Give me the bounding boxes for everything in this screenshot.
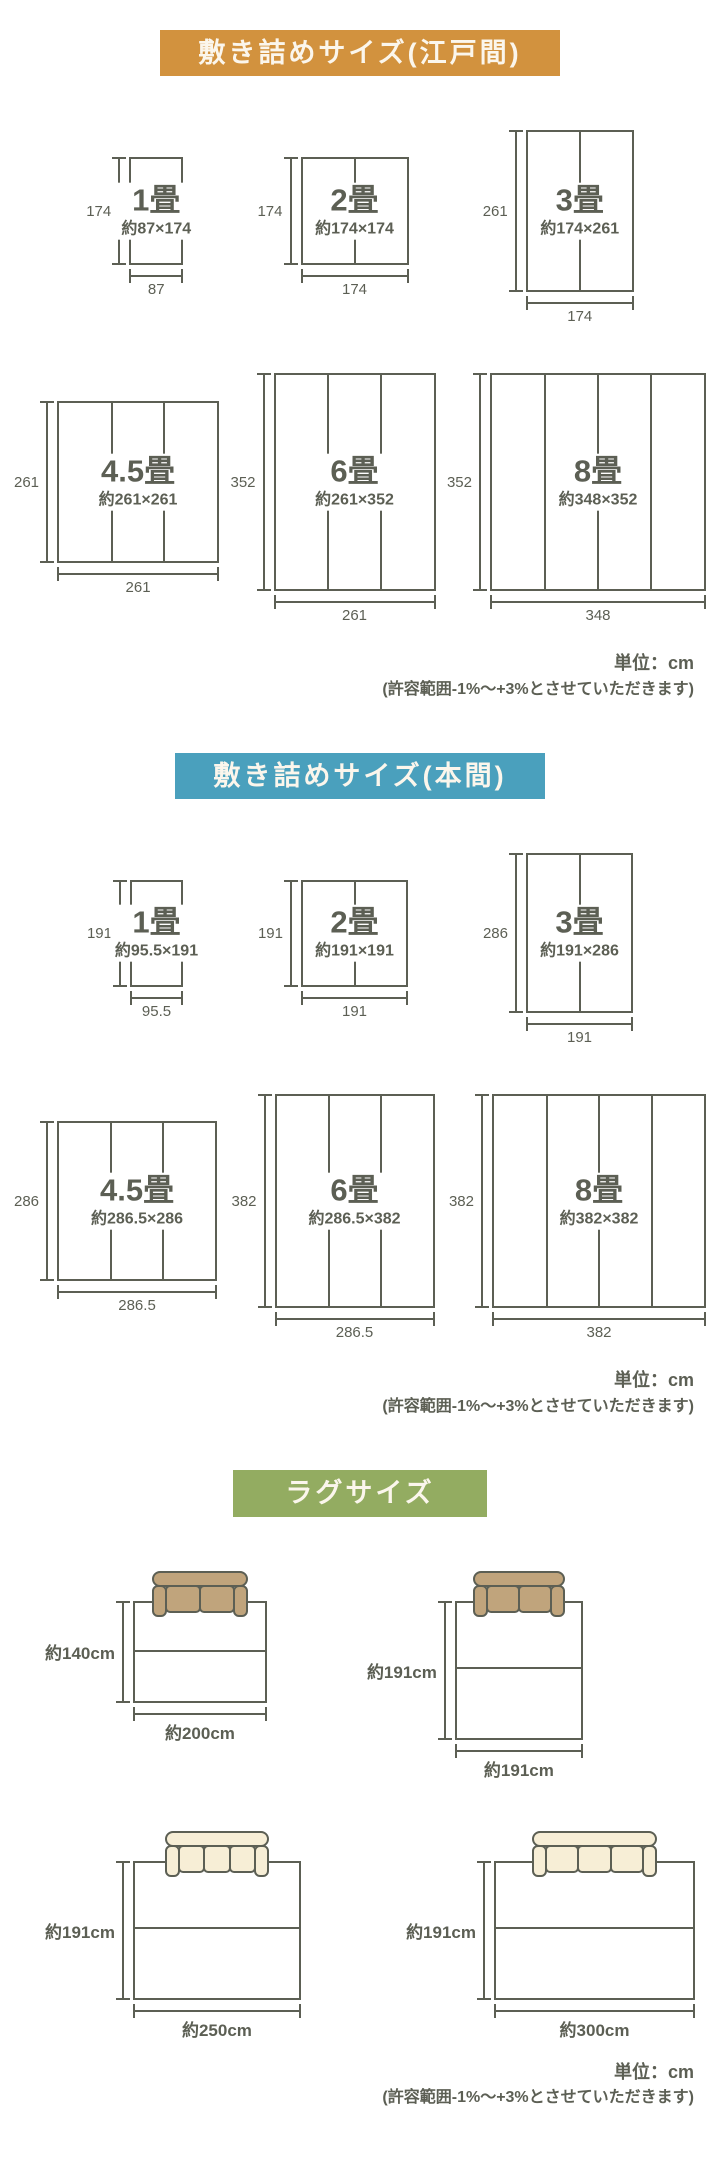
sofa-cushion (165, 1585, 201, 1613)
rug-height-dim-label: 約191cm (45, 1918, 115, 1943)
tatami-row: 1741畳約87×174871742畳約174×1741742613畳約174×… (0, 130, 720, 325)
tatami-size-label: 4.5畳約261×261 (94, 454, 183, 511)
rug-height-dim-label: 約191cm (406, 1918, 476, 1943)
tatami-rect: 1畳約95.5×191 (130, 880, 183, 987)
rug-rect (494, 1861, 695, 2000)
tatami-diagram: 2613畳約174×261174 (483, 130, 634, 325)
width-dim-line (57, 573, 219, 575)
edoma-tolerance-note: (許容範囲-1%〜+3%とさせていただきます) (0, 678, 694, 703)
height-dim-line (264, 1094, 266, 1308)
tatami-size-dims: 約261×261 (99, 492, 178, 510)
tatami-size-dims: 約191×286 (540, 943, 619, 961)
rug-height-dim-line (122, 1601, 124, 1703)
rug-group: 約250cm (133, 1831, 301, 2041)
height-dim-label: 352 (447, 474, 472, 491)
tatami-rect: 2畳約191×191 (301, 880, 408, 987)
rug-height-dim-line (122, 1861, 124, 2000)
rug-group: 約191cm (455, 1571, 583, 1781)
height-dim-line (46, 1121, 48, 1281)
tatami-rect-group: 4.5畳約286.5×286286.5 (57, 1121, 217, 1314)
sofa-cushion (199, 1585, 235, 1613)
tatami-size-label: 2畳約174×174 (310, 183, 399, 240)
height-dimension: 174 (257, 157, 291, 265)
rug-group: 約200cm (133, 1571, 267, 1744)
sofa-seat-row (532, 1845, 657, 1877)
sofa-cushion (545, 1845, 579, 1873)
height-dimension: 286 (14, 1121, 48, 1281)
rug-fold-line (135, 1650, 265, 1652)
tatami-size-dims: 約382×382 (560, 1211, 639, 1229)
tatami-size-dims: 約95.5×191 (115, 943, 198, 961)
tatami-rect-group: 3畳約191×286191 (526, 853, 633, 1046)
section-edoma: 敷き詰めサイズ(江戸間) 1741畳約87×174871742畳約174×174… (0, 30, 720, 703)
tatami-rug-size-guide: 敷き詰めサイズ(江戸間) 1741畳約87×174871742畳約174×174… (0, 0, 720, 2160)
edoma-section-title: 敷き詰めサイズ(江戸間) (198, 38, 521, 68)
tatami-rect: 8畳約382×382 (492, 1094, 706, 1308)
tatami-rect-group: 2畳約174×174174 (301, 157, 409, 298)
rug-section-header: ラグサイズ (233, 1470, 486, 1516)
height-dim-line (290, 157, 292, 265)
tatami-diagram: 3826畳約286.5×382286.5 (231, 1094, 434, 1341)
tatami-diagram: 2614.5畳約261×261261 (14, 401, 219, 596)
sofa-seat-row (165, 1845, 269, 1877)
tatami-size-name: 1畳 (115, 906, 198, 941)
width-dim-label: 95.5 (142, 1003, 171, 1020)
tatami-size-name: 4.5畳 (91, 1174, 183, 1209)
tatami-rect-group: 6畳約286.5×382286.5 (275, 1094, 435, 1341)
tatami-row: 2864.5畳約286.5×286286.53826畳約286.5×382286… (0, 1094, 720, 1341)
edoma-notes: 単位：cm (許容範囲-1%〜+3%とさせていただきます) (0, 650, 720, 703)
tatami-rect: 6畳約286.5×382 (275, 1094, 435, 1308)
tatami-rect-group: 1畳約87×17487 (129, 157, 183, 298)
tatami-size-label: 1畳約87×174 (116, 183, 196, 240)
tatami-size-label: 6畳約286.5×382 (303, 1173, 405, 1230)
sofa-cushion (518, 1585, 552, 1613)
tatami-size-name: 2畳 (315, 184, 394, 219)
height-dimension: 286 (483, 853, 517, 1013)
sofa-armrest-right (642, 1845, 657, 1877)
tatami-size-name: 8畳 (560, 1174, 639, 1209)
tatami-diagram: 1912畳約191×191191 (258, 880, 408, 1020)
sofa-top-view (473, 1571, 565, 1617)
rug-height-dimension: 約191cm (367, 1601, 446, 1740)
height-dim-line (515, 853, 517, 1013)
tatami-size-name: 4.5畳 (99, 455, 178, 490)
rug-section-title: ラグサイズ (285, 1478, 434, 1508)
tatami-size-name: 2畳 (315, 906, 394, 941)
edoma-unit-note: 単位：cm (0, 650, 694, 678)
height-dimension: 174 (86, 157, 120, 265)
tatami-rect-group: 6畳約261×352261 (274, 373, 436, 624)
rug-height-dimension: 約191cm (45, 1861, 124, 2000)
width-dim-line (301, 997, 408, 999)
tatami-size-dims: 約261×352 (315, 492, 394, 510)
tatami-diagram: 1911畳約95.5×19195.5 (87, 880, 183, 1020)
tatami-rect: 8畳約348×352 (490, 373, 706, 591)
height-dim-label: 261 (483, 203, 508, 220)
height-dim-line (263, 373, 265, 591)
width-dim-line (130, 997, 183, 999)
tatami-size-label: 8畳約348×352 (554, 454, 643, 511)
height-dim-line (290, 880, 292, 987)
height-dim-label: 191 (258, 925, 283, 942)
honma-notes: 単位：cm (許容範囲-1%〜+3%とさせていただきます) (0, 1367, 720, 1420)
sofa-top-view (152, 1571, 248, 1617)
sofa-seat-row (473, 1585, 565, 1617)
edoma-diagrams: 1741畳約87×174871742畳約174×1741742613畳約174×… (0, 130, 720, 624)
honma-unit-note: 単位：cm (0, 1367, 694, 1395)
rug-fold-line (457, 1667, 581, 1669)
section-honma: 敷き詰めサイズ(本間) 1911畳約95.5×19195.51912畳約191×… (0, 753, 720, 1420)
rug-height-dimension: 約191cm (406, 1861, 485, 2000)
sofa-seat-row (152, 1585, 248, 1617)
tatami-size-name: 6畳 (308, 1174, 400, 1209)
tatami-size-dims: 約87×174 (121, 221, 191, 239)
rug-height-dim-label: 約140cm (45, 1639, 115, 1664)
tatami-rect: 1畳約87×174 (129, 157, 183, 265)
sofa-cushion (203, 1845, 230, 1873)
honma-section-title: 敷き詰めサイズ(本間) (213, 761, 506, 791)
tatami-size-name: 6畳 (315, 455, 394, 490)
tatami-size-label: 4.5畳約286.5×286 (86, 1173, 188, 1230)
height-dim-label: 261 (14, 474, 39, 491)
rug-height-dimension: 約140cm (45, 1601, 124, 1703)
tatami-row: 2614.5畳約261×2612613526畳約261×3522613528畳約… (0, 373, 720, 624)
tatami-size-dims: 約174×261 (540, 221, 619, 239)
height-dim-label: 382 (449, 1193, 474, 1210)
width-dim-line (57, 1291, 217, 1293)
rug-width-dim-label: 約200cm (165, 1719, 235, 1744)
width-dim-line (301, 275, 409, 277)
rug-diagram: 約191cm約191cm (367, 1571, 583, 1781)
tatami-size-dims: 約174×174 (315, 221, 394, 239)
tatami-rect-group: 3畳約174×261174 (526, 130, 634, 325)
tatami-size-label: 1畳約95.5×191 (110, 905, 203, 962)
rug-unit-note: 単位：cm (0, 2059, 694, 2087)
tatami-size-dims: 約348×352 (559, 492, 638, 510)
rug-width-dim-label: 約300cm (560, 2016, 630, 2041)
tatami-size-label: 2畳約191×191 (310, 905, 399, 962)
width-dim-label: 348 (585, 607, 610, 624)
tatami-rect: 4.5畳約261×261 (57, 401, 219, 563)
height-dim-label: 352 (230, 474, 255, 491)
sofa-top-view (532, 1831, 657, 1877)
tatami-diagram: 3526畳約261×352261 (230, 373, 435, 624)
width-dim-line (275, 1318, 435, 1320)
tatami-rect: 3畳約174×261 (526, 130, 634, 292)
width-dim-label: 261 (126, 579, 151, 596)
tatami-rect-group: 1畳約95.5×19195.5 (130, 880, 183, 1020)
width-dim-label: 174 (342, 281, 367, 298)
tatami-rect-group: 8畳約348×352348 (490, 373, 706, 624)
rug-notes: 単位：cm (許容範囲-1%〜+3%とさせていただきます) (0, 2059, 720, 2112)
tatami-mat-divider (544, 375, 546, 589)
sofa-cushion (178, 1845, 205, 1873)
width-dim-label: 191 (567, 1029, 592, 1046)
rug-fold-line (135, 1927, 299, 1929)
honma-diagrams: 1911畳約95.5×19195.51912畳約191×1911912863畳約… (0, 853, 720, 1341)
height-dim-label: 174 (86, 203, 111, 220)
height-dimension: 261 (483, 130, 517, 292)
tatami-mat-divider (651, 1096, 653, 1306)
width-dim-label: 382 (586, 1324, 611, 1341)
rug-height-dim-line (444, 1601, 446, 1740)
height-dim-line (479, 373, 481, 591)
sofa-top-view (165, 1831, 269, 1877)
height-dimension: 382 (449, 1094, 483, 1308)
height-dim-line (46, 401, 48, 563)
rug-row: 約191cm約250cm約191cm約300cm (0, 1831, 720, 2041)
rug-diagram: 約191cm約250cm (45, 1831, 301, 2041)
rug-width-dim-line (133, 2010, 301, 2012)
rug-rect (133, 1861, 301, 2000)
tatami-diagram: 1741畳約87×17487 (86, 157, 183, 298)
rug-row: 約140cm約200cm約191cm約191cm (0, 1571, 720, 1781)
sofa-cushion (577, 1845, 611, 1873)
tatami-rect-group: 4.5畳約261×261261 (57, 401, 219, 596)
width-dim-label: 261 (342, 607, 367, 624)
tatami-rect: 2畳約174×174 (301, 157, 409, 265)
width-dim-line (490, 601, 706, 603)
rug-width-dim-line (455, 1750, 583, 1752)
height-dimension: 191 (258, 880, 292, 987)
height-dim-label: 286 (483, 925, 508, 942)
tatami-rect-group: 8畳約382×382382 (492, 1094, 706, 1341)
tatami-rect-group: 2畳約191×191191 (301, 880, 408, 1020)
width-dim-label: 174 (567, 308, 592, 325)
rug-group: 約300cm (494, 1831, 695, 2041)
height-dim-label: 191 (87, 925, 112, 942)
rug-diagram: 約140cm約200cm (45, 1571, 267, 1744)
rug-fold-line (496, 1927, 693, 1929)
tatami-diagram: 3828畳約382×382382 (449, 1094, 706, 1341)
width-dim-label: 191 (342, 1003, 367, 1020)
tatami-size-name: 3畳 (540, 906, 619, 941)
tatami-rect: 6畳約261×352 (274, 373, 436, 591)
height-dimension: 352 (230, 373, 264, 591)
tatami-size-name: 1畳 (121, 184, 191, 219)
tatami-size-dims: 約286.5×382 (308, 1211, 400, 1229)
rug-height-dim-label: 約191cm (367, 1658, 437, 1683)
tatami-size-name: 3畳 (540, 184, 619, 219)
tatami-diagram: 3528畳約348×352348 (447, 373, 706, 624)
tatami-size-label: 3畳約174×261 (535, 183, 624, 240)
width-dim-line (274, 601, 436, 603)
tatami-size-dims: 約191×191 (315, 943, 394, 961)
honma-section-header: 敷き詰めサイズ(本間) (175, 753, 544, 799)
sofa-armrest-right (233, 1585, 248, 1617)
height-dim-line (481, 1094, 483, 1308)
width-dim-line (526, 302, 634, 304)
tatami-mat-divider (546, 1096, 548, 1306)
rug-width-dim-label: 約191cm (484, 1756, 554, 1781)
rug-diagram: 約191cm約300cm (406, 1831, 695, 2041)
tatami-rect: 3畳約191×286 (526, 853, 633, 1013)
tatami-diagram: 2863畳約191×286191 (483, 853, 633, 1046)
tatami-diagram: 1742畳約174×174174 (257, 157, 408, 298)
height-dim-label: 174 (257, 203, 282, 220)
tatami-diagram: 2864.5畳約286.5×286286.5 (14, 1121, 217, 1314)
rug-width-dim-line (133, 1713, 267, 1715)
height-dim-label: 382 (231, 1193, 256, 1210)
rug-tolerance-note: (許容範囲-1%〜+3%とさせていただきます) (0, 2086, 694, 2111)
sofa-cushion (486, 1585, 520, 1613)
section-rug: ラグサイズ 約140cm約200cm約191cm約191cm約191cm約250… (0, 1470, 720, 2111)
sofa-cushion (610, 1845, 644, 1873)
rug-rect (455, 1601, 583, 1740)
rug-diagrams: 約140cm約200cm約191cm約191cm約191cm約250cm約191… (0, 1571, 720, 2041)
width-dim-line (526, 1023, 633, 1025)
tatami-rect: 4.5畳約286.5×286 (57, 1121, 217, 1281)
height-dim-label: 286 (14, 1193, 39, 1210)
height-dim-line (515, 130, 517, 292)
height-dimension: 382 (231, 1094, 265, 1308)
edoma-section-header: 敷き詰めサイズ(江戸間) (160, 30, 559, 76)
tatami-size-name: 8畳 (559, 455, 638, 490)
width-dim-label: 286.5 (336, 1324, 374, 1341)
width-dim-label: 286.5 (118, 1297, 156, 1314)
rug-width-dim-line (494, 2010, 695, 2012)
rug-height-dim-line (483, 1861, 485, 2000)
sofa-cushion (229, 1845, 256, 1873)
width-dim-line (492, 1318, 706, 1320)
sofa-armrest-right (254, 1845, 269, 1877)
tatami-size-label: 6畳約261×352 (310, 454, 399, 511)
rug-width-dim-label: 約250cm (182, 2016, 252, 2041)
width-dim-label: 87 (148, 281, 165, 298)
height-dimension: 261 (14, 401, 48, 563)
sofa-armrest-right (550, 1585, 565, 1617)
tatami-row: 1911畳約95.5×19195.51912畳約191×1911912863畳約… (0, 853, 720, 1046)
tatami-size-dims: 約286.5×286 (91, 1211, 183, 1229)
tatami-size-label: 3畳約191×286 (535, 905, 624, 962)
height-dimension: 352 (447, 373, 481, 591)
tatami-mat-divider (650, 375, 652, 589)
honma-tolerance-note: (許容範囲-1%〜+3%とさせていただきます) (0, 1395, 694, 1420)
width-dim-line (129, 275, 183, 277)
tatami-size-label: 8畳約382×382 (555, 1173, 644, 1230)
